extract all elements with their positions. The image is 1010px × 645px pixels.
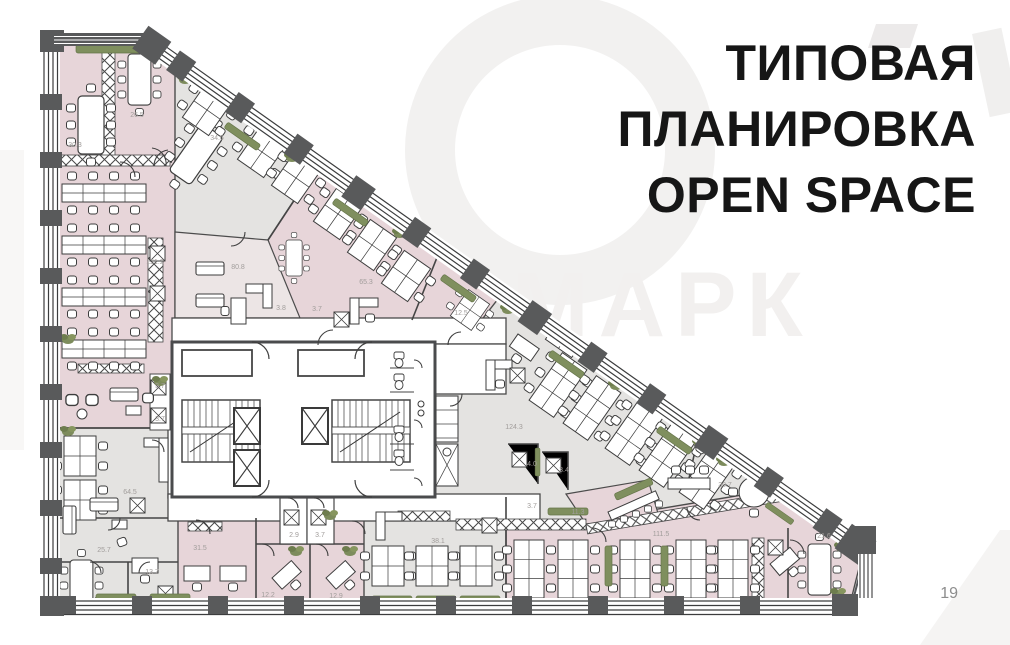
area-label-13-7: 13.7 (145, 569, 159, 576)
area-label-31-5: 31.5 (193, 545, 207, 552)
area-label-65-3: 65.3 (359, 279, 373, 286)
elevator-3 (302, 408, 328, 444)
area-label-64-5: 64.5 (123, 489, 137, 496)
area-label-124-3: 124.3 (505, 424, 523, 431)
slide: ТИПОВАЯ ПЛАНИРОВКА OPEN SPACE 19 (0, 0, 1010, 645)
area-label-2-9: 2.9 (289, 532, 299, 539)
area-label-38-1: 38.1 (431, 538, 445, 545)
page-title: ТИПОВАЯ ПЛАНИРОВКА OPEN SPACE (618, 30, 977, 228)
area-label-11-3: 11.3 (571, 509, 584, 516)
title-line-2: ПЛАНИРОВКА (618, 96, 977, 162)
area-label-3-4: 3.4 (559, 467, 569, 474)
area-label-80-8: 80.8 (231, 264, 245, 271)
area-label-3-7d: 3.7 (155, 383, 165, 390)
storage-bottom-a-unit (284, 510, 299, 525)
area-label-26-5: 26.5 (130, 112, 144, 119)
area-label-111-5: 111.5 (653, 531, 670, 538)
area-label-3-7c: 3.7 (315, 532, 325, 539)
area-label-34-6: 34.6 (210, 135, 224, 142)
area-label-30-7: 30.7 (718, 482, 732, 489)
area-label-3-7b: 3.7 (527, 503, 537, 510)
building-core (172, 342, 435, 497)
area-label-12-2: 12.2 (261, 592, 275, 599)
area-label-30-3: 30.3 (68, 142, 82, 149)
pantry-unit (512, 452, 527, 467)
area-label-121-2: 121.2 (146, 259, 164, 266)
area-label-3-7e: 3.7 (155, 416, 165, 423)
area-label-21-6: 21.6 (817, 533, 831, 540)
elevator-2 (234, 450, 260, 486)
area-label-12-9: 12.9 (329, 593, 343, 600)
area-label-3-8: 3.8 (276, 305, 286, 312)
title-line-1: ТИПОВАЯ (618, 30, 977, 96)
title-line-3: OPEN SPACE (618, 162, 977, 228)
area-label-3-7a: 3.7 (312, 306, 322, 313)
watermark-band (920, 530, 1010, 645)
elevator-1 (234, 408, 260, 444)
page-number: 19 (940, 585, 958, 603)
area-label-12-5: 12.5 (454, 310, 468, 317)
area-label-4-0: 4.0 (527, 461, 537, 468)
area-label-25-7: 25.7 (97, 547, 111, 554)
kitchen-cabinets (436, 396, 458, 486)
